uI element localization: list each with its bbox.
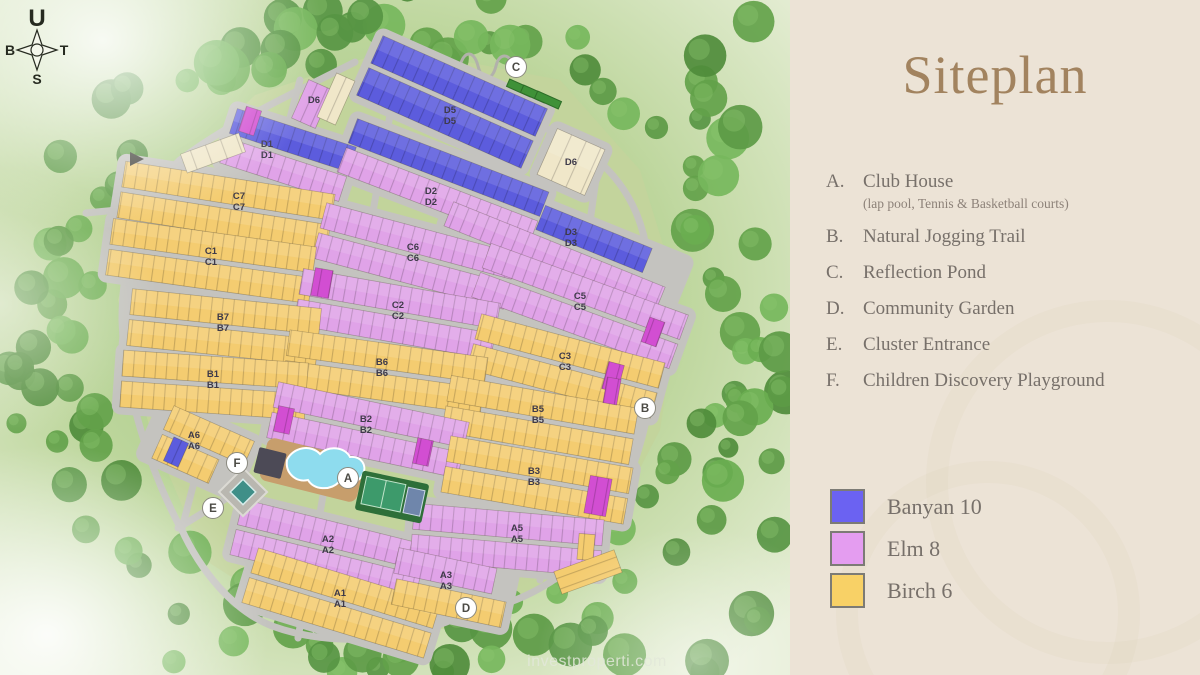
legend-swatch-banyan: [830, 489, 865, 524]
amenity-label: Cluster Entrance: [863, 333, 1186, 356]
amenity-label: Club House: [863, 170, 1186, 193]
amenity-letter: E.: [826, 333, 863, 356]
amenity-letter: D.: [826, 297, 863, 320]
amenity-label: Natural Jogging Trail: [863, 225, 1186, 248]
legend-row-elm: Elm 8: [830, 531, 982, 566]
amenity-letter: C.: [826, 261, 863, 284]
legend-swatch-birch: [830, 573, 865, 608]
amenity-item-community-garden: D. Community Garden: [826, 297, 1186, 320]
amenity-item-club-house: A. Club House (lap pool, Tennis & Basket…: [826, 170, 1186, 212]
svg-text:D: D: [462, 603, 470, 615]
svg-text:C: C: [512, 62, 520, 74]
compass-north-label: U: [28, 5, 45, 32]
amenity-item-jogging-trail: B. Natural Jogging Trail: [826, 225, 1186, 248]
legend-label: Birch 6: [887, 578, 952, 604]
compass-south-label: S: [32, 71, 41, 87]
legend-row-birch: Birch 6: [830, 573, 982, 608]
page-title: Siteplan: [790, 44, 1200, 106]
amenity-list: A. Club House (lap pool, Tennis & Basket…: [826, 170, 1186, 405]
legend-label: Banyan 10: [887, 494, 982, 520]
compass-east-label: T: [60, 42, 69, 58]
map-marker-A: A: [338, 468, 359, 489]
svg-text:F: F: [233, 458, 240, 470]
map-marker-F: F: [227, 453, 248, 474]
amenity-letter: A.: [826, 170, 863, 193]
map-marker-D: D: [456, 598, 477, 619]
compass-west-label: B: [5, 42, 15, 58]
siteplan-page: D5D5D1D1D2D2D3D3D6C7C7C6C6C5C5C1C1C2C2C3…: [0, 0, 1200, 675]
svg-text:E: E: [209, 503, 217, 515]
siteplan-map: D5D5D1D1D2D2D3D3D6C7C7C6C6C5C5C1C1C2C2C3…: [0, 0, 790, 675]
map-marker-C: C: [506, 57, 527, 78]
legend-label: Elm 8: [887, 536, 940, 562]
cluster-legend: Banyan 10 Elm 8 Birch 6: [830, 489, 982, 615]
haze-wash: [0, 0, 790, 675]
legend-swatch-elm: [830, 531, 865, 566]
svg-text:B: B: [641, 403, 649, 415]
amenity-sublabel: (lap pool, Tennis & Basketball courts): [863, 195, 1186, 212]
amenity-label: Community Garden: [863, 297, 1186, 320]
legend-panel: Siteplan A. Club House (lap pool, Tennis…: [790, 0, 1200, 675]
svg-text:A: A: [344, 473, 352, 485]
amenity-label: Children Discovery Playground: [863, 369, 1186, 392]
amenity-letter: B.: [826, 225, 863, 248]
watermark: investproperti.com: [527, 653, 667, 670]
amenity-item-cluster-entrance: E. Cluster Entrance: [826, 333, 1186, 356]
amenity-item-playground: F. Children Discovery Playground: [826, 369, 1186, 392]
amenity-letter: F.: [826, 369, 863, 392]
amenity-item-reflection-pond: C. Reflection Pond: [826, 261, 1186, 284]
map-marker-B: B: [635, 398, 656, 419]
map-marker-E: E: [203, 498, 224, 519]
amenity-label: Reflection Pond: [863, 261, 1186, 284]
legend-row-banyan: Banyan 10: [830, 489, 982, 524]
